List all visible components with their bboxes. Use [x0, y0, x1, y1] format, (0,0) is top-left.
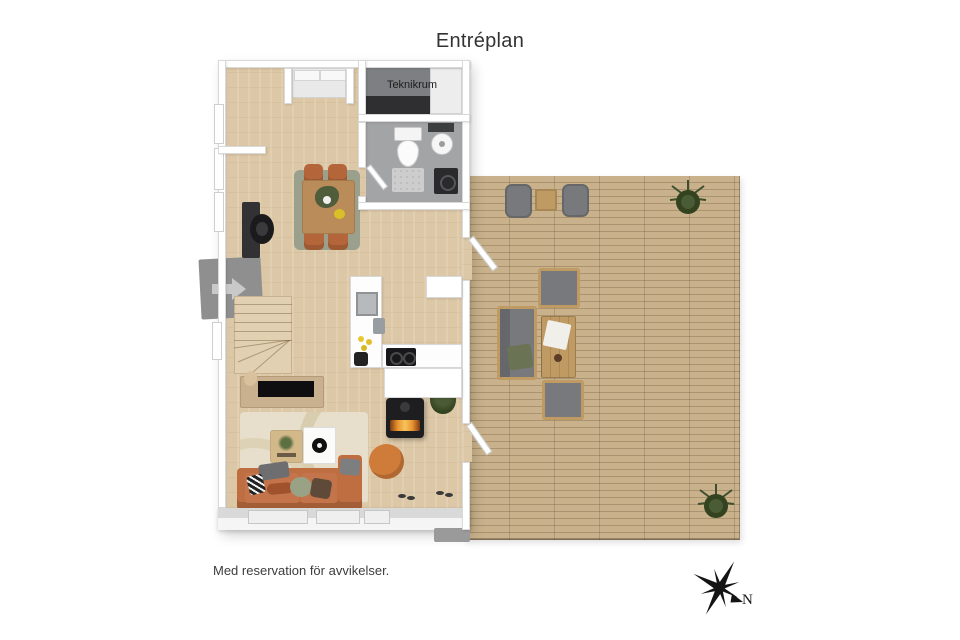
interior-wall: [358, 202, 470, 210]
interior-wall: [358, 60, 366, 122]
exterior-step: [434, 528, 470, 542]
table-decor: [554, 354, 562, 362]
bath-mat: [392, 168, 424, 192]
shoes: [436, 491, 444, 495]
deck-lounge-chair-top: [538, 268, 580, 308]
decor-plate: [312, 438, 327, 453]
window: [364, 510, 390, 524]
wood-stove: [386, 398, 424, 438]
interior-wall: [218, 146, 266, 154]
plan-title: Entréplan: [0, 30, 960, 53]
compass-north-label: N: [742, 592, 753, 609]
shoes: [398, 494, 406, 498]
wardrobe-sliding-door: [294, 70, 320, 81]
vase: [323, 196, 331, 204]
deck-side-table: [535, 189, 557, 211]
dining-table: [302, 180, 355, 234]
deck-lounge-sofa: [497, 306, 537, 380]
deck-coffee-table: [541, 316, 576, 378]
stair-winders: [234, 340, 292, 374]
deck-lounge-chair-bottom: [542, 380, 584, 420]
toilet-tank: [394, 127, 422, 141]
interior-wall: [358, 122, 366, 168]
window: [316, 510, 360, 524]
shoes: [407, 496, 415, 500]
deck-armchair-left: [505, 184, 532, 218]
exterior-wall-right: [462, 60, 470, 238]
potted-grass-plant: [668, 178, 708, 218]
staircase: [234, 296, 292, 374]
exterior-wall-right: [462, 462, 470, 530]
table-cloth: [543, 320, 572, 350]
desk-chair: [250, 214, 274, 244]
bathroom-mirror: [428, 123, 454, 132]
compass-rose-icon: [688, 556, 752, 620]
teknikrum-dark-floor: [366, 96, 430, 114]
stair-treads: [234, 296, 292, 342]
window: [212, 322, 222, 360]
window: [214, 192, 224, 232]
potted-grass-plant: [696, 482, 736, 522]
nook-wall: [284, 68, 292, 104]
pillow-sage: [290, 477, 312, 497]
nook-wall: [346, 68, 354, 104]
interior-wall: [358, 114, 470, 122]
wardrobe-sliding-door: [320, 70, 346, 81]
exterior-wall-bottom: [218, 508, 470, 530]
lemons: [358, 336, 364, 342]
pillow-brown: [310, 477, 333, 499]
kitchen-towel: [373, 318, 385, 334]
window: [248, 510, 308, 524]
window: [214, 104, 224, 144]
floorplan-canvas: Entréplan: [0, 0, 960, 640]
sofa-throw-blanket: [506, 343, 533, 370]
pouf-ottoman: [369, 444, 404, 479]
disclaimer-text: Med reservation för avvikelser.: [213, 563, 389, 578]
washing-machine: [434, 168, 458, 194]
exterior-wall-right: [462, 280, 470, 424]
stove-fire-glow: [390, 420, 420, 431]
room-label-teknikrum: Teknikrum: [366, 79, 458, 91]
kettle: [354, 352, 368, 366]
tray-plant: [277, 435, 295, 451]
interior-wall: [426, 276, 462, 298]
kitchen-sink: [356, 292, 378, 316]
window: [214, 148, 224, 190]
exterior-wall-top: [218, 60, 470, 68]
stove-pipe: [400, 402, 410, 412]
teknikrum-cabinet: [430, 68, 462, 114]
deck-armchair-right: [562, 184, 589, 217]
pillow-chaise: [339, 458, 360, 476]
sofa: [237, 455, 362, 510]
shoes: [445, 493, 453, 497]
wardrobe-nook: [292, 68, 346, 98]
cooktop: [386, 348, 416, 366]
interior-wall: [384, 368, 462, 398]
bathroom-sink: [431, 133, 453, 155]
tv-screen: [258, 381, 314, 397]
outdoor-deck: [464, 176, 740, 540]
fruit-bowl: [334, 209, 345, 219]
